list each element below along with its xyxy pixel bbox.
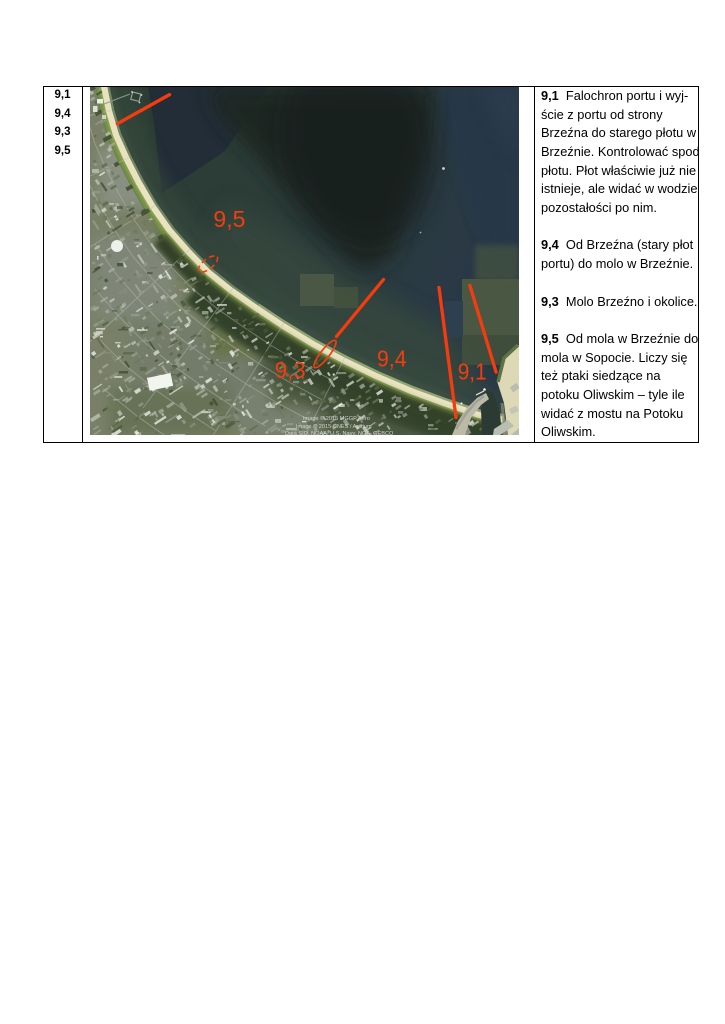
svg-text:9,4: 9,4 [377, 345, 407, 371]
svg-text:Image © 2015 MGGP Aero: Image © 2015 MGGP Aero [303, 415, 370, 422]
svg-text:9,1: 9,1 [458, 358, 487, 384]
svg-text:9,5: 9,5 [213, 206, 245, 232]
svg-text:9,3: 9,3 [275, 357, 306, 383]
svg-text:Data SIO, NOAA, U.S. Navy, NGA: Data SIO, NOAA, U.S. Navy, NGA, GEBCO [285, 431, 394, 435]
svg-text:Image © 2015 CNES / Astrium: Image © 2015 CNES / Astrium [296, 423, 372, 430]
